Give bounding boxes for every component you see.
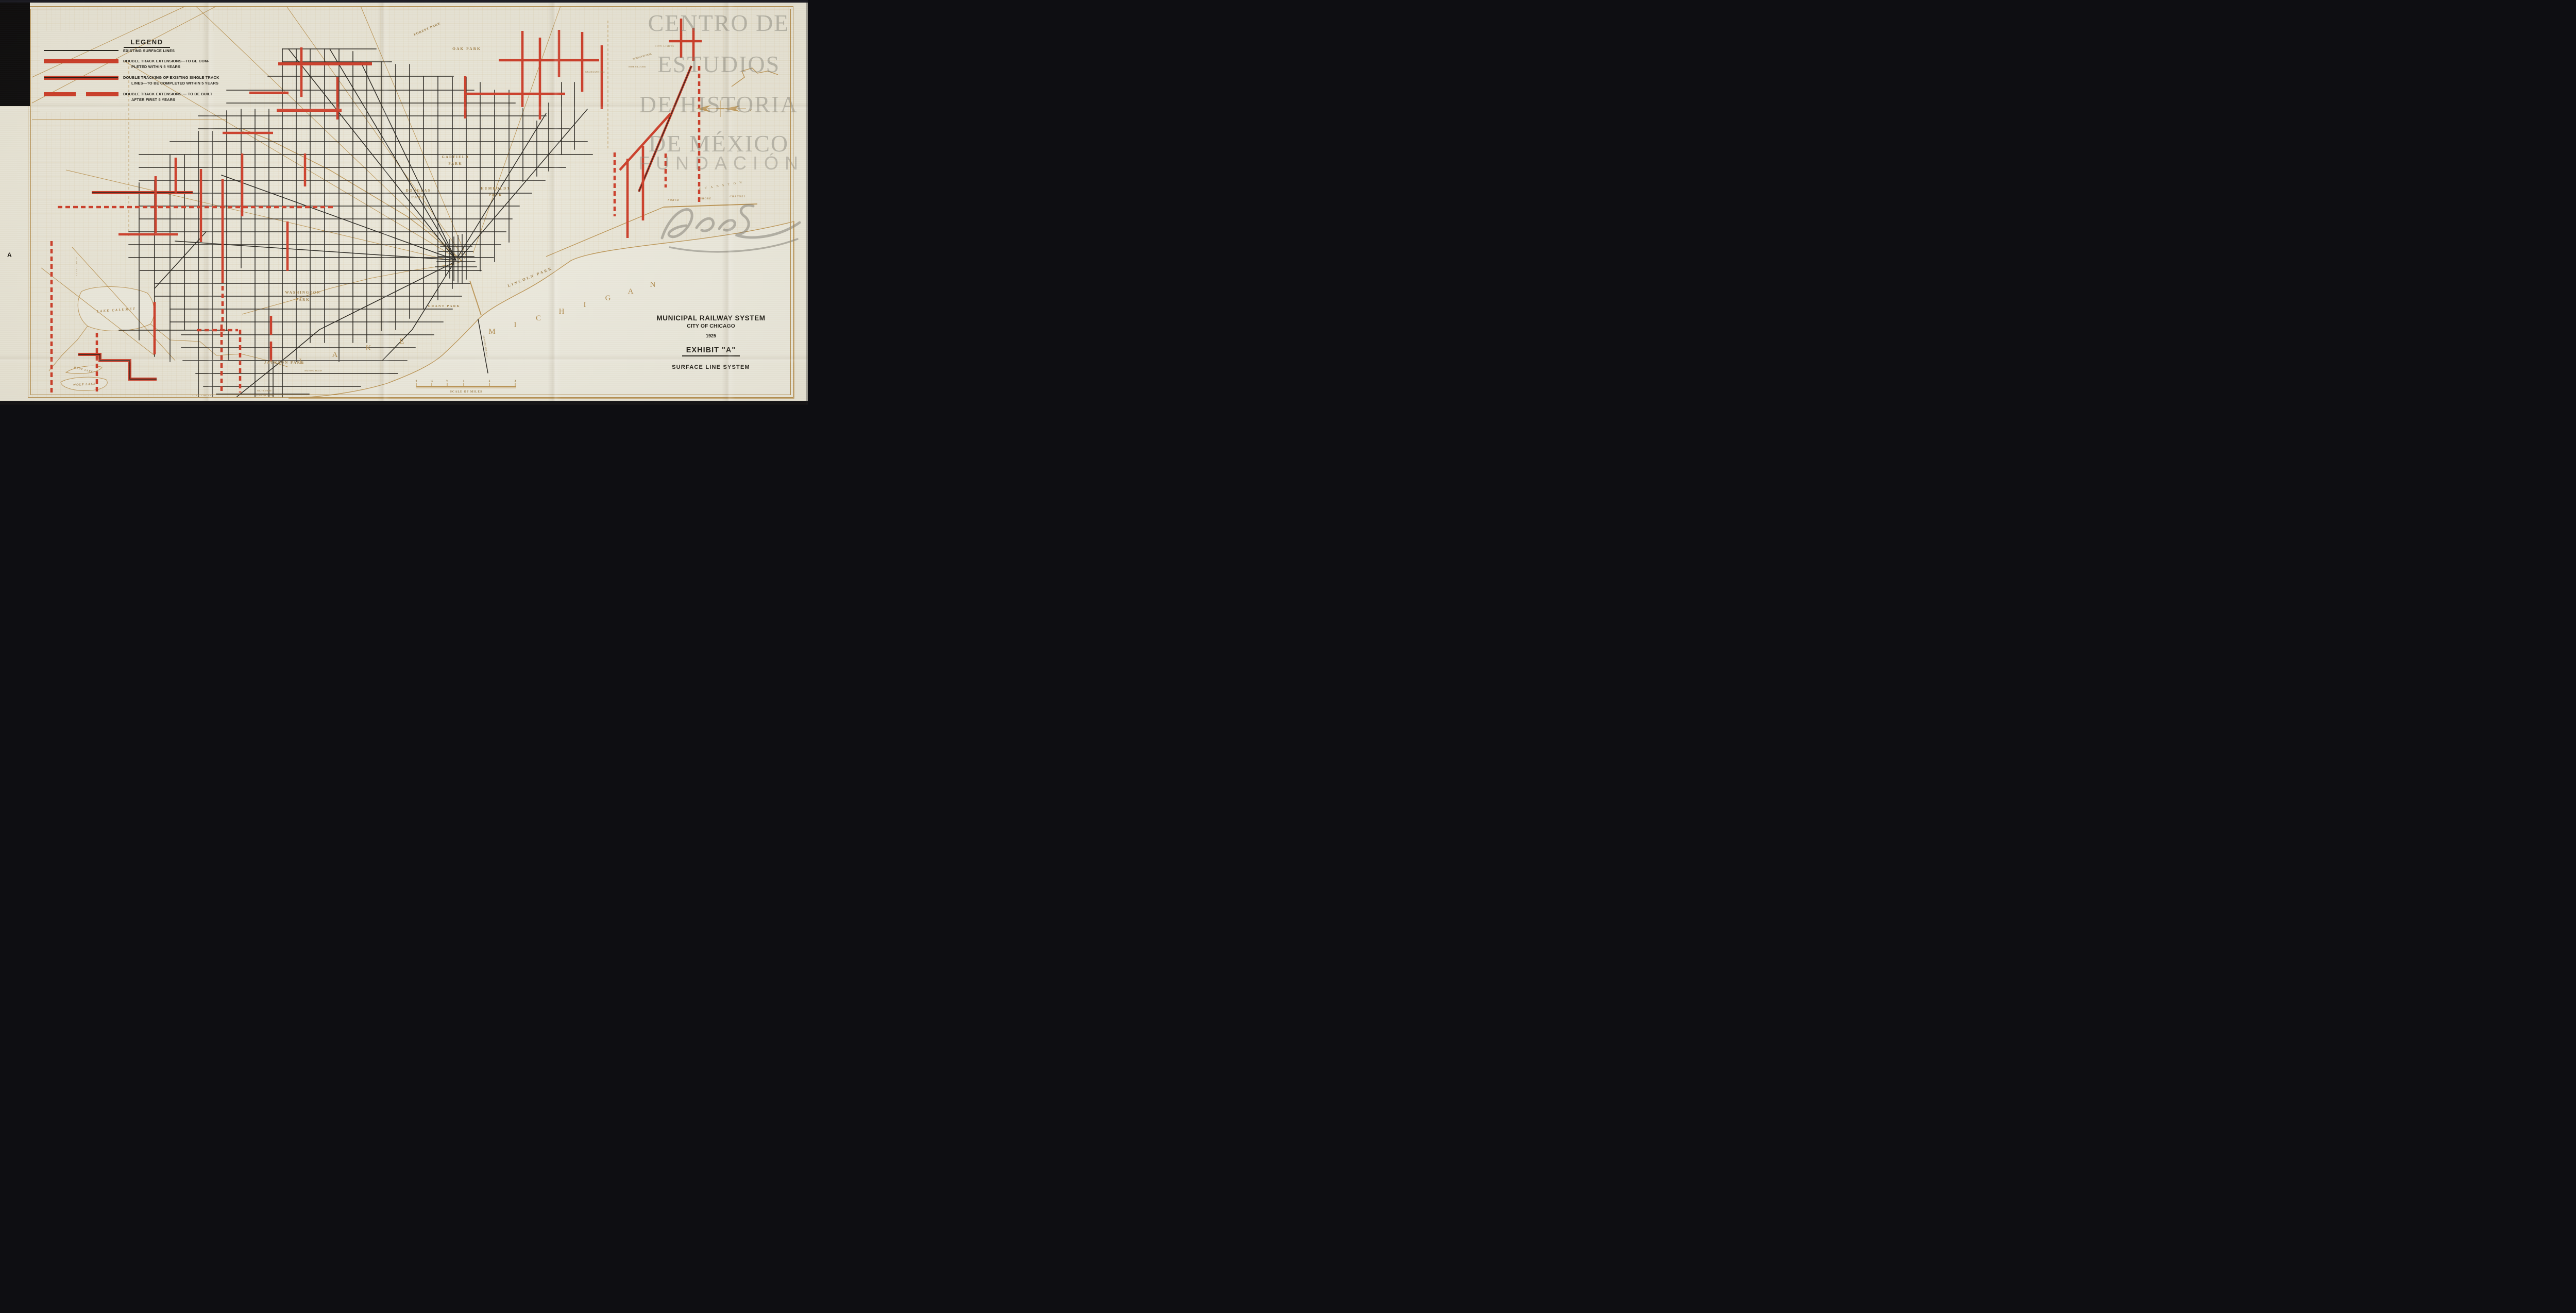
scan-edge-right: [806, 0, 808, 405]
map-title: MUNICIPAL RAILWAY SYSTEM: [639, 314, 783, 322]
map-year: 1925: [639, 333, 783, 338]
map-label: GRACELAND CEM.: [585, 71, 605, 73]
scan-edge-bottom: [0, 401, 808, 405]
map-label: A: [628, 287, 634, 296]
map-label: CITY LIMITS: [655, 45, 674, 47]
map-label: M: [488, 328, 495, 336]
map-label: L: [299, 357, 303, 366]
map-label: COUNTRY CLUB: [256, 394, 273, 397]
map-label: H: [559, 308, 565, 316]
legend-item-label: DOUBLE TRACK EXTENSIONS—TO BE COM-: [123, 59, 244, 64]
scan-edge-top: [0, 0, 808, 3]
map-label: DOUGLAS: [406, 189, 431, 193]
map-label: OAK PARK: [452, 46, 481, 51]
map-label: CHANNEL: [730, 196, 745, 198]
scale-tick-label: 0: [416, 380, 417, 383]
existing-line-symbol: [44, 48, 118, 54]
map-label: SOUTH SHORE: [257, 389, 272, 392]
future-extension-symbol: [44, 92, 118, 97]
legend-item-label: PLETED WITHIN 5 YEARS: [123, 64, 244, 70]
scale-tick-label: 1: [463, 380, 465, 383]
scale-caption: SCALE OF MILES: [450, 390, 483, 394]
double-tracking-symbol: [44, 75, 118, 80]
scan-black-corner: [0, 0, 30, 106]
legend-title: LEGEND: [124, 38, 170, 48]
legend-item-label: LINES—TO BE COMPLETED WITHIN 5 YEARS: [123, 81, 244, 87]
legend-item-existing: EXISTING SURFACE LINES: [44, 48, 244, 54]
legend-item-double-tracking: DOUBLE TRACKING OF EXISTING SINGLE TRACK…: [44, 75, 244, 86]
map-label: WASHINGTON: [285, 291, 321, 295]
scale-tick-label: 3: [515, 380, 516, 383]
map-label: I: [514, 321, 517, 329]
map-label: K: [366, 344, 371, 352]
map-label: CITY LIMITS: [75, 257, 78, 276]
map-label: PARK: [411, 195, 425, 199]
map-label: PARK: [488, 193, 502, 197]
exhibit-label: EXHIBIT "A": [682, 346, 740, 356]
margin-index-letter: A: [7, 251, 12, 259]
map-label: HUMBOLDT: [481, 186, 511, 191]
map-label: GRANT PARK: [428, 304, 461, 308]
map-label: NORTH: [667, 199, 680, 202]
map-label: PARK: [296, 298, 310, 302]
map-label: BATHING BEACH: [304, 369, 322, 372]
scale-tick-label: ¼: [431, 380, 433, 383]
extension-symbol: [44, 59, 118, 64]
legend-item-future-extension: DOUBLE TRACK EXTENSIONS — TO BE BUILT AF…: [44, 92, 244, 103]
map-label: PARK: [448, 162, 462, 166]
map-label: G: [605, 294, 611, 302]
map-label: GARFIELD: [442, 155, 469, 159]
map-label: E: [399, 337, 404, 346]
watermark-line: DE HISTORIA: [631, 91, 806, 118]
legend-item-label: AFTER FIRST 5 YEARS: [123, 97, 244, 103]
map-sheet: FOREST PARKOAK PARKCITY LIMITSNORWOOD PA…: [0, 0, 808, 405]
map-label: A: [332, 351, 338, 359]
legend-item-label: DOUBLE TRACK EXTENSIONS — TO BE BUILT: [123, 92, 244, 97]
legend-item-label: EXISTING SURFACE LINES: [123, 48, 244, 54]
system-label: SURFACE LINE SYSTEM: [639, 364, 783, 370]
watermark-line: CENTRO DE: [631, 9, 806, 37]
title-block: MUNICIPAL RAILWAY SYSTEM CITY OF CHICAGO…: [639, 314, 783, 370]
foundation-watermark: FUNDACIÓN: [636, 152, 806, 174]
map-label: SHORE: [700, 198, 711, 200]
watermark-line: ESTUDIOS: [631, 50, 806, 78]
map-label: I: [584, 301, 586, 309]
legend-item-label: DOUBLE TRACKING OF EXISTING SINGLE TRACK: [123, 75, 244, 81]
map-subtitle-city: CITY OF CHICAGO: [639, 323, 783, 329]
legend-item-extension: DOUBLE TRACK EXTENSIONS—TO BE COM- PLETE…: [44, 59, 244, 70]
scale-tick-label: ½: [446, 379, 448, 383]
map-label: CITY LIMITS: [193, 394, 212, 397]
map-label: C: [536, 314, 541, 322]
map-label: N: [650, 281, 656, 289]
scale-tick-label: 2: [489, 380, 490, 383]
